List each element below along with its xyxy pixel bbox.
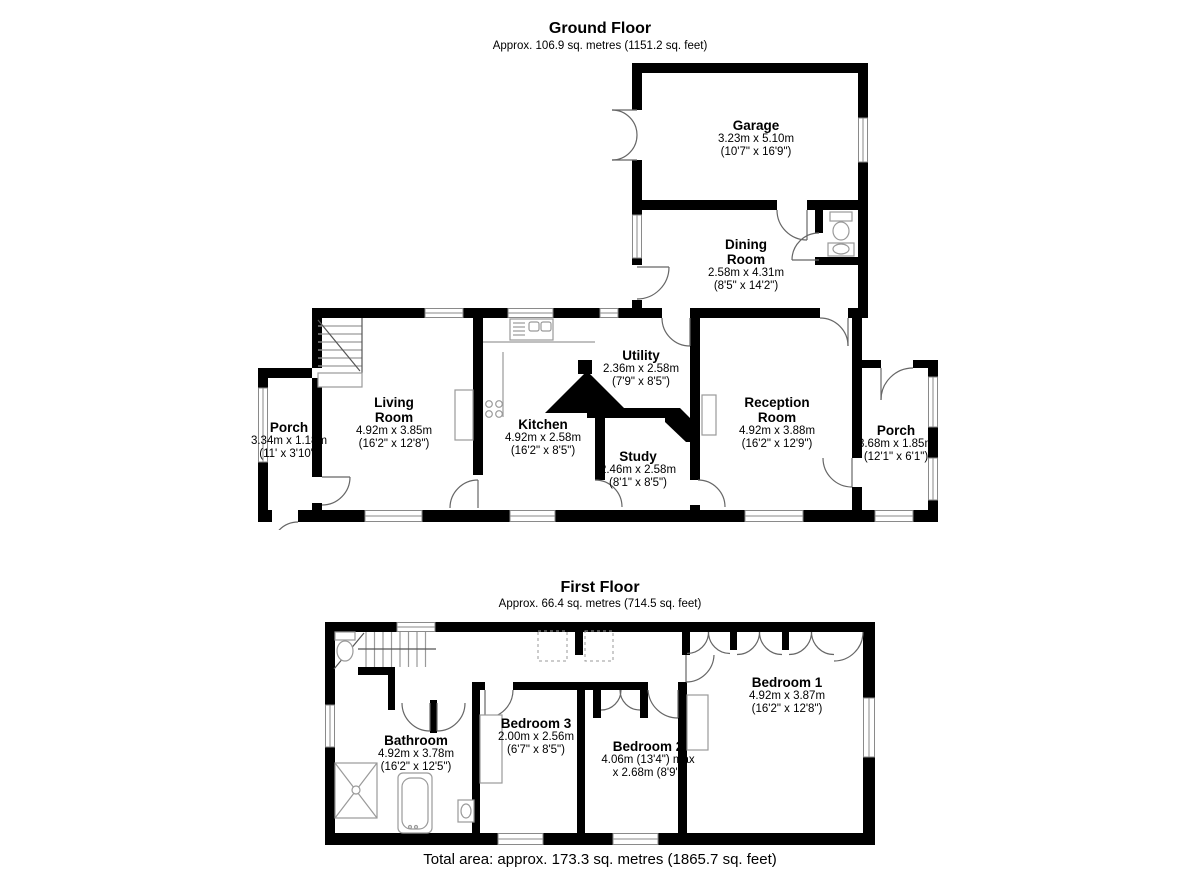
room-dim-metric: 2.46m x 2.58m [600, 464, 676, 477]
room-dim-imperial: (11' x 3'10") [251, 448, 327, 461]
room-name: Bathroom [378, 733, 454, 748]
wash-basin [458, 800, 474, 822]
landing-toilet [335, 632, 355, 661]
room-dim-imperial: (10'7" x 16'9") [718, 146, 794, 159]
floorplan-page: Ground Floor Approx. 106.9 sq. metres (1… [0, 0, 1200, 873]
shower [335, 763, 377, 818]
room-dim-imperial: (16'2" x 12'8") [356, 438, 432, 451]
room-dim-imperial: (16'2" x 12'9") [734, 438, 820, 451]
room-label-bedroom-1: Bedroom 1 4.92m x 3.87m (16'2" x 12'8") [749, 675, 825, 716]
room-label-garage: Garage 3.23m x 5.10m (10'7" x 16'9") [718, 118, 794, 159]
room-label-dining-room: Dining Room 2.58m x 4.31m (8'5" x 14'2") [708, 237, 784, 293]
ground-floor-subtitle: Approx. 106.9 sq. metres (1151.2 sq. fee… [493, 40, 708, 52]
room-dim-imperial: (16'2" x 12'8") [749, 703, 825, 716]
first-floor-title: First Floor [560, 579, 639, 597]
living-room-unit [455, 390, 473, 440]
room-dim-imperial: (8'1" x 8'5") [600, 477, 676, 490]
total-area-text: Total area: approx. 173.3 sq. metres (18… [423, 851, 777, 868]
room-name: Living Room [358, 395, 430, 425]
room-name: Reception Room [734, 395, 820, 425]
room-name: Porch [251, 420, 327, 435]
kitchen-sink [510, 319, 553, 340]
room-dim-metric: 4.92m x 3.88m [734, 425, 820, 438]
first-floor-subtitle: Approx. 66.4 sq. metres (714.5 sq. feet) [499, 598, 702, 610]
room-label-utility: Utility 2.36m x 2.58m (7'9" x 8'5") [603, 348, 679, 389]
room-label-living-room: Living Room 4.92m x 3.85m (16'2" x 12'8"… [356, 395, 432, 451]
ground-floor-doors [272, 110, 913, 530]
room-dim-imperial: (12'1" x 6'1") [858, 451, 934, 464]
ground-stairs [318, 318, 362, 387]
room-name: Utility [603, 348, 679, 363]
room-label-bedroom-2: Bedroom 2 4.06m (13'4") max x 2.68m (8'9… [601, 739, 694, 780]
room-name: Study [600, 449, 676, 464]
room-name: Kitchen [505, 417, 581, 432]
room-name: Porch [858, 423, 934, 438]
room-label-reception-room: Reception Room 4.92m x 3.88m (16'2" x 12… [734, 395, 820, 451]
room-name: Bedroom 3 [498, 716, 574, 731]
room-dim-metric: 4.06m (13'4") max [601, 754, 694, 767]
room-dim-metric: 2.00m x 2.56m [498, 731, 574, 744]
room-label-porch-left: Porch 3.34m x 1.18m (11' x 3'10") [251, 420, 327, 461]
wc-basin [828, 243, 854, 256]
room-dim-metric: 3.34m x 1.18m [251, 435, 327, 448]
room-dim-imperial: (8'5" x 14'2") [708, 280, 784, 293]
bath-tub [398, 773, 432, 833]
room-label-bedroom-3: Bedroom 3 2.00m x 2.56m (6'7" x 8'5") [498, 716, 574, 757]
room-dim-imperial: (6'7" x 8'5") [498, 744, 574, 757]
room-name: Bedroom 1 [749, 675, 825, 690]
room-name: Bedroom 2 [601, 739, 694, 754]
room-dim-metric: 4.92m x 2.58m [505, 432, 581, 445]
room-dim-metric: 2.58m x 4.31m [708, 267, 784, 280]
room-dim-imperial: (16'2" x 12'5") [378, 761, 454, 774]
room-label-bathroom: Bathroom 4.92m x 3.78m (16'2" x 12'5") [378, 733, 454, 774]
room-dim-metric: 4.92m x 3.85m [356, 425, 432, 438]
room-dim-metric: 3.23m x 5.10m [718, 133, 794, 146]
wc-toilet [830, 212, 852, 240]
room-dim-imperial: x 2.68m (8'9") [601, 767, 694, 780]
room-label-study: Study 2.46m x 2.58m (8'1" x 8'5") [600, 449, 676, 490]
room-dim-imperial: (16'2" x 8'5") [505, 445, 581, 458]
room-dim-metric: 2.36m x 2.58m [603, 363, 679, 376]
room-label-porch-right: Porch 3.68m x 1.85m (12'1" x 6'1") [858, 423, 934, 464]
room-dim-imperial: (7'9" x 8'5") [603, 376, 679, 389]
room-name: Dining Room [710, 237, 782, 267]
room-name: Garage [718, 118, 794, 133]
ground-floor-title: Ground Floor [549, 20, 651, 38]
room-dim-metric: 4.92m x 3.78m [378, 748, 454, 761]
ground-floor-walls [258, 63, 938, 522]
room-label-kitchen: Kitchen 4.92m x 2.58m (16'2" x 8'5") [505, 417, 581, 458]
reception-radiator [702, 395, 716, 435]
hob-icon [486, 401, 503, 418]
room-dim-metric: 3.68m x 1.85m [858, 438, 934, 451]
room-dim-metric: 4.92m x 3.87m [749, 690, 825, 703]
